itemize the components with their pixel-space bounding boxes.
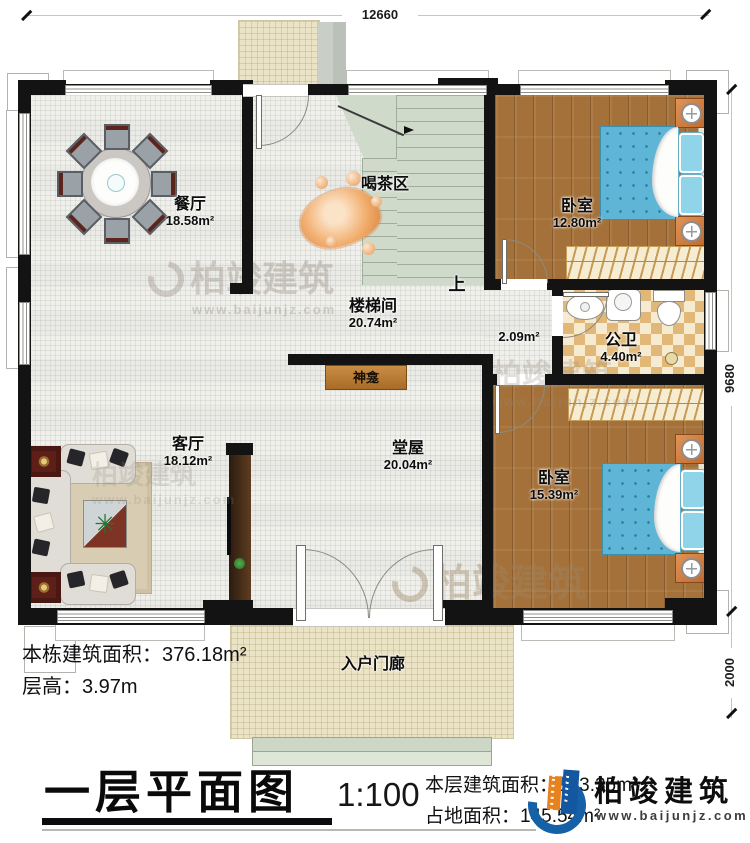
wall-bedroombottom-north-b bbox=[545, 374, 704, 385]
wall-endcap bbox=[230, 283, 253, 294]
wardrobe-bedroom-top bbox=[566, 246, 706, 281]
tea-stool bbox=[371, 196, 382, 207]
door-leaf-bedroom-top bbox=[502, 239, 507, 284]
corner-table bbox=[27, 446, 61, 477]
wall-right bbox=[704, 84, 717, 625]
wall-column bbox=[18, 80, 66, 95]
dimension-width: 12660 bbox=[342, 7, 418, 22]
window-dining-west bbox=[19, 113, 30, 255]
stairs-direction-arrow bbox=[404, 126, 414, 134]
window-bedroombottom-south bbox=[523, 610, 673, 623]
wall-stair-bedroom bbox=[484, 84, 495, 290]
wall-bedroomtop-south-b bbox=[547, 279, 704, 290]
dining-chair bbox=[151, 171, 177, 197]
room-label-dining: 餐厅 18.58m² bbox=[150, 196, 230, 228]
wardrobe-bedroom-bottom bbox=[568, 388, 706, 421]
lamp-icon bbox=[681, 221, 702, 242]
bathroom-shower-head bbox=[614, 293, 632, 311]
sofa-pillow bbox=[32, 539, 51, 557]
window-living-south bbox=[57, 610, 205, 623]
wall-bedroomtop-south-a bbox=[484, 279, 501, 290]
room-label-corridor: 2.09m² bbox=[490, 330, 548, 344]
wall-tv-cap bbox=[226, 443, 253, 455]
tv-cabinet bbox=[229, 453, 251, 600]
wall-column bbox=[443, 600, 493, 625]
title-underline-thin bbox=[42, 829, 536, 831]
nightstand bbox=[675, 434, 706, 464]
room-label-tea: 喝茶区 bbox=[348, 176, 422, 194]
floor-top-porch bbox=[238, 20, 320, 86]
logo-building-icon bbox=[560, 769, 579, 814]
nightstand bbox=[675, 216, 706, 246]
tv-plant bbox=[234, 558, 245, 569]
window-bedroomtop-north bbox=[520, 85, 669, 95]
sofa-pillow bbox=[89, 574, 109, 593]
corner-table bbox=[27, 572, 61, 603]
tea-stool bbox=[326, 236, 337, 247]
door-leaf-back bbox=[256, 95, 262, 149]
nightstand bbox=[675, 98, 706, 128]
dimension-height-porch: 2000 bbox=[722, 648, 737, 698]
wall-column bbox=[665, 80, 717, 95]
top-porch-steps2 bbox=[333, 22, 346, 84]
door-leaf-entry-right bbox=[433, 545, 443, 621]
wall-column bbox=[203, 600, 253, 625]
room-label-hall: 堂屋 20.04m² bbox=[368, 440, 448, 472]
wall-dining-stair bbox=[242, 84, 253, 294]
brand-website: www.baijunjz.com bbox=[596, 808, 748, 823]
lamp-icon bbox=[681, 103, 702, 124]
shrine-cabinet: 神龛 bbox=[325, 365, 407, 390]
dining-table-center bbox=[107, 174, 125, 192]
tea-stool bbox=[315, 176, 328, 189]
wall-column bbox=[18, 598, 31, 625]
page-title: 一层平面图 bbox=[44, 756, 299, 822]
bathroom-floor-drain bbox=[665, 352, 678, 365]
brand-name: 柏竣建筑 bbox=[594, 768, 734, 810]
floor-plan-sheet: 上 柏竣建筑 www.baijunjz.com 柏竣建筑 www.baijunj… bbox=[0, 0, 750, 843]
window-bath-east bbox=[705, 292, 716, 350]
bed-pillow bbox=[679, 175, 704, 215]
wall-hall-east bbox=[482, 354, 493, 608]
dimension-line-right-main bbox=[731, 90, 732, 612]
bed-pillow bbox=[679, 133, 704, 173]
dining-chair bbox=[57, 171, 83, 197]
room-label-living: 客厅 18.12m² bbox=[148, 436, 228, 468]
door-leaf-bathroom bbox=[563, 292, 609, 297]
door-leaf-entry-left bbox=[296, 545, 306, 621]
room-label-stairwell: 楼梯间 20.74m² bbox=[334, 298, 412, 330]
sofa-pillow bbox=[89, 451, 110, 471]
dining-chair bbox=[104, 124, 130, 150]
bed-pillow bbox=[681, 470, 706, 509]
room-label-bedroom-bottom: 卧室 15.39m² bbox=[514, 470, 594, 502]
title-underline bbox=[42, 818, 332, 825]
tv-screen bbox=[227, 497, 231, 555]
door-leaf-bedroom-bottom bbox=[495, 385, 500, 434]
brand-logo: 柏竣建筑 www.baijunjz.com bbox=[528, 768, 743, 834]
floor-entry-porch bbox=[230, 625, 514, 739]
bed-pillow bbox=[681, 511, 706, 550]
nightstand bbox=[675, 553, 706, 583]
room-label-porch: 入户门廊 bbox=[325, 656, 421, 674]
tea-stool bbox=[362, 242, 375, 255]
lamp-icon bbox=[681, 558, 702, 579]
room-label-bathroom: 公卫 4.40m² bbox=[592, 332, 650, 364]
drawing-scale: 1:100 bbox=[337, 776, 420, 814]
room-label-bedroom-top: 卧室 12.80m² bbox=[538, 198, 616, 230]
window-stair-north bbox=[348, 85, 487, 95]
wall-bath-west-b bbox=[552, 336, 563, 375]
dining-chair bbox=[104, 218, 130, 244]
note-floor-height: 层高：3.97m bbox=[22, 670, 138, 699]
note-total-area: 本栋建筑面积：376.18m² bbox=[22, 638, 247, 667]
window-living-west bbox=[19, 302, 30, 365]
dimension-height-main: 9680 bbox=[722, 352, 737, 406]
wall-hall-north bbox=[288, 354, 484, 365]
sofa-pillow bbox=[32, 487, 50, 505]
logo-building-icon bbox=[547, 776, 562, 811]
coffee-table: ✳ bbox=[83, 500, 127, 548]
window-dining-north bbox=[65, 85, 212, 95]
sill-bottom-bedroom bbox=[521, 623, 675, 641]
top-porch-steps bbox=[318, 22, 333, 84]
stairs-up-label: 上 bbox=[444, 276, 470, 295]
plant-icon: ✳ bbox=[94, 509, 116, 539]
wall-bath-west-a bbox=[552, 290, 563, 296]
lamp-icon bbox=[681, 439, 702, 460]
